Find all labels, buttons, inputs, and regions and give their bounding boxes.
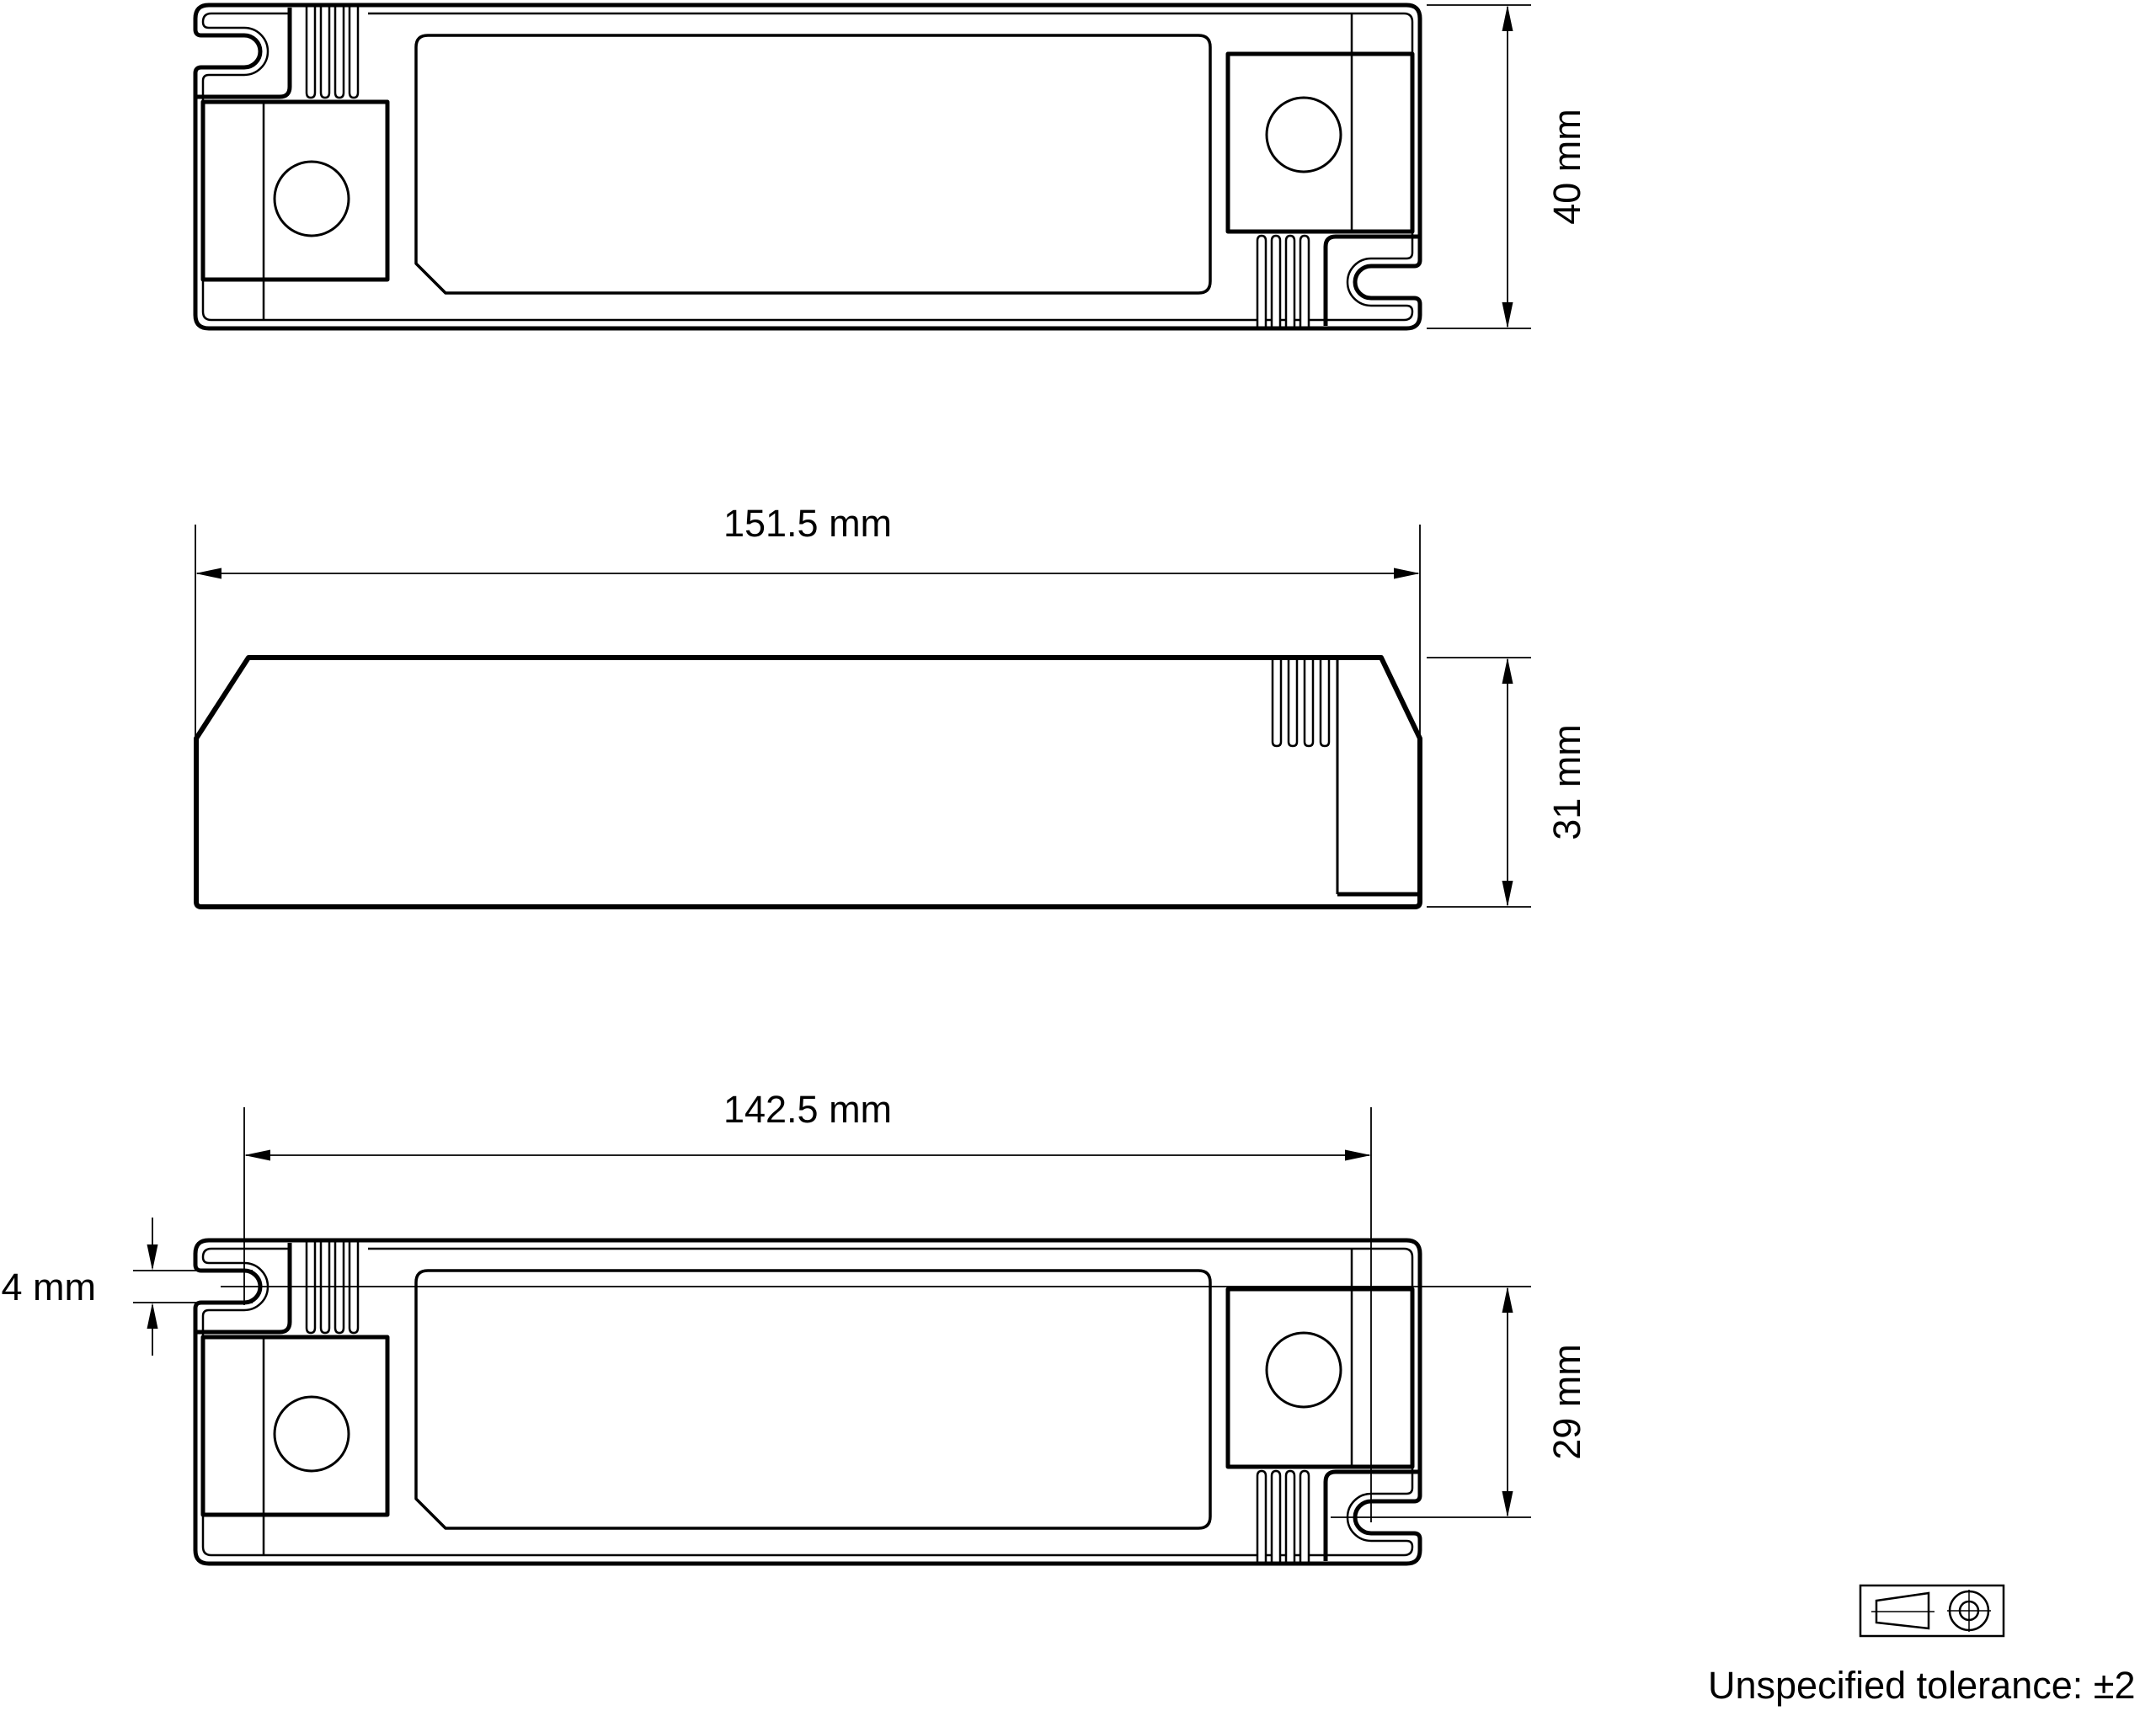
bottom-view: [195, 1240, 1420, 1564]
vent-slots-side: [1273, 660, 1329, 746]
dim-hole-spacing: 142.5 mm: [244, 1088, 1371, 1522]
dim-label-142mm: 142.5 mm: [723, 1088, 892, 1131]
tolerance-note: Unspecified tolerance: ±2: [1708, 1664, 2135, 1707]
technical-drawing: 40 mm 151.5 mm 31 mm 142.5 mm 4 mm: [0, 0, 2156, 1716]
projection-circle-crosshair: [1947, 1590, 1991, 1632]
dim-label-40mm: 40 mm: [1545, 109, 1588, 225]
dim-overall-length: 151.5 mm: [195, 502, 1420, 737]
dim-label-29mm: 29 mm: [1545, 1344, 1588, 1460]
side-view: [196, 658, 1420, 907]
dim-side-height: 31 mm: [1427, 658, 1588, 907]
dim-top-height: 40 mm: [1427, 5, 1588, 328]
dim-label-31mm: 31 mm: [1545, 724, 1588, 840]
dim-label-151mm: 151.5 mm: [723, 502, 892, 545]
drawing-page: 40 mm 151.5 mm 31 mm 142.5 mm 4 mm: [0, 0, 2156, 1716]
first-angle-projection-icon: [1860, 1585, 2004, 1636]
projection-cone-side-view: [1876, 1593, 1929, 1628]
top-view: [195, 5, 1420, 328]
side-outline: [196, 658, 1420, 907]
dim-label-4mm: 4 mm: [2, 1266, 97, 1308]
